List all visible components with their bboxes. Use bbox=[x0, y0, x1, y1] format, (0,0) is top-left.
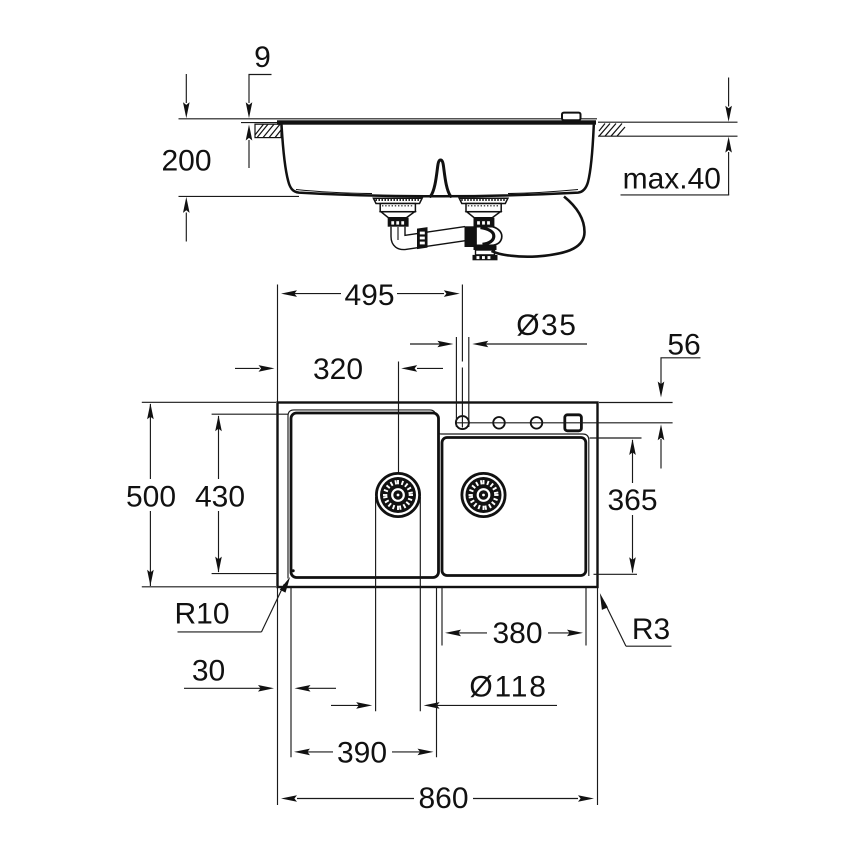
svg-text:430: 430 bbox=[195, 480, 245, 513]
svg-text:380: 380 bbox=[492, 617, 542, 650]
svg-text:860: 860 bbox=[418, 782, 468, 815]
svg-text:30: 30 bbox=[192, 655, 225, 688]
svg-text:9: 9 bbox=[254, 41, 271, 74]
svg-text:495: 495 bbox=[344, 279, 394, 312]
svg-text:Ø118: Ø118 bbox=[469, 670, 547, 703]
svg-text:500: 500 bbox=[126, 480, 176, 513]
svg-text:Ø35: Ø35 bbox=[516, 309, 577, 342]
svg-text:R10: R10 bbox=[174, 598, 229, 631]
svg-text:365: 365 bbox=[607, 484, 657, 517]
svg-text:390: 390 bbox=[337, 736, 387, 769]
svg-text:56: 56 bbox=[667, 328, 700, 361]
svg-text:R3: R3 bbox=[632, 613, 670, 646]
svg-text:max.40: max.40 bbox=[623, 163, 721, 196]
svg-text:320: 320 bbox=[313, 353, 363, 386]
svg-text:200: 200 bbox=[161, 145, 211, 178]
